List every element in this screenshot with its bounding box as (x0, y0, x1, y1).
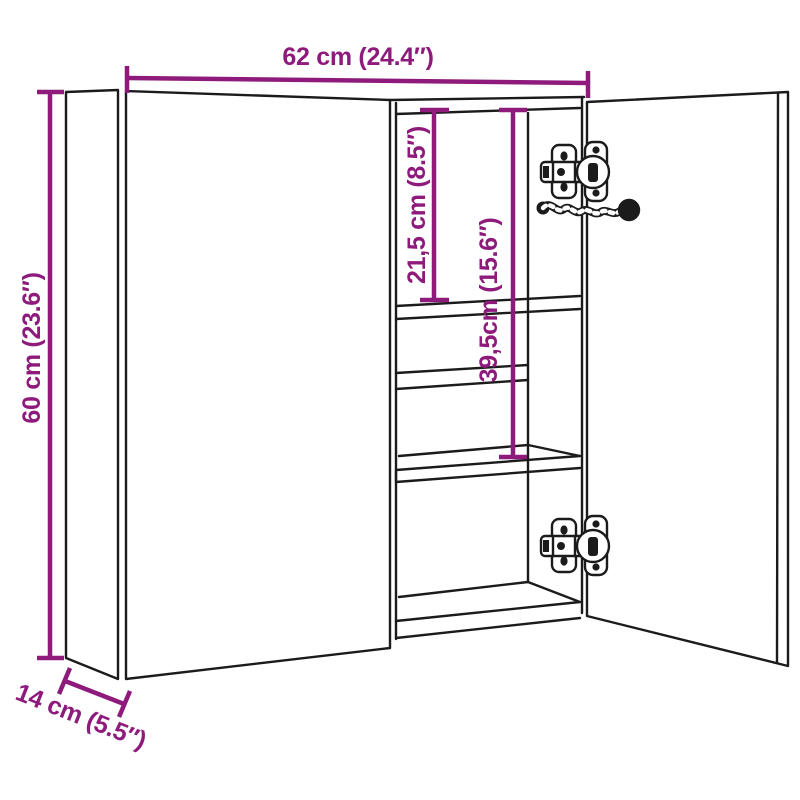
cabinet-floor (396, 582, 580, 638)
bottom-shelf-dimension-label: 39,5cm (15.6″) (475, 218, 503, 383)
cabinet-dimension-diagram: 62 cm (24.4″) 60 cm (23.6″) 14 cm (5.5″)… (0, 0, 800, 800)
left-side-panel (66, 90, 118, 679)
diagram-canvas: 62 cm (24.4″) 60 cm (23.6″) 14 cm (5.5″)… (0, 0, 800, 800)
hinge-top-icon (541, 142, 609, 201)
shelf-middle (396, 365, 528, 389)
height-dimension-label: 60 cm (23.6″) (18, 272, 46, 423)
top-shelf-dimension-label: 21,5 cm (8.5″) (403, 126, 431, 284)
mirror-door (126, 91, 390, 679)
bottom-shelf-dimension (499, 110, 527, 457)
depth-dimension-label: 14 cm (5.5″) (12, 678, 150, 754)
width-dimension-label: 62 cm (24.4″) (282, 43, 433, 71)
shelf-bottom (396, 445, 580, 482)
right-door (587, 92, 788, 666)
right-door-inner-edge (777, 94, 778, 663)
hinge-bottom-icon (541, 516, 609, 575)
